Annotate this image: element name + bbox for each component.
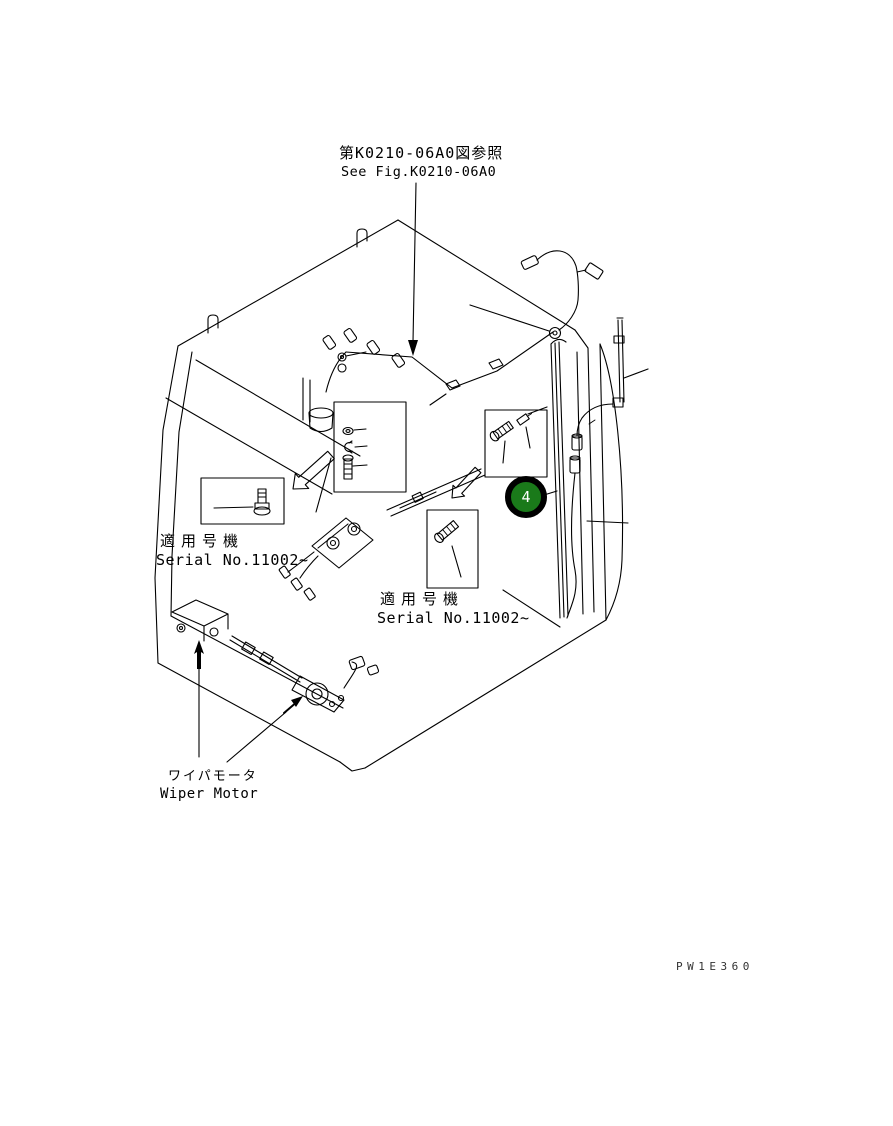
harness-clamp bbox=[489, 359, 503, 369]
wiper-motor-label-en: Wiper Motor bbox=[160, 786, 258, 802]
part-callout-4[interactable]: 4 bbox=[508, 479, 557, 515]
grommet-hole bbox=[352, 527, 357, 532]
solid-arrow-up bbox=[194, 640, 204, 669]
bolt-head bbox=[433, 531, 446, 544]
left-serial-note-en: Serial No.11002~ bbox=[156, 551, 309, 569]
wire-connector bbox=[304, 588, 316, 601]
leader-line bbox=[587, 521, 628, 523]
bolt-head bbox=[254, 507, 270, 515]
bolt-shaft bbox=[493, 421, 513, 438]
floor-edge-left bbox=[158, 663, 340, 762]
harness-connector bbox=[322, 335, 336, 350]
pillar-wire bbox=[567, 473, 576, 618]
cab-outline bbox=[155, 220, 623, 771]
snap-ring bbox=[345, 441, 352, 453]
pivot bbox=[177, 624, 185, 632]
motor-connector bbox=[367, 665, 379, 676]
tank-top bbox=[309, 408, 333, 418]
wire-connector bbox=[291, 578, 303, 591]
pivot-hole bbox=[180, 627, 183, 630]
harness-connector bbox=[366, 340, 380, 355]
callout-box-middle bbox=[427, 510, 478, 588]
callout-box bbox=[201, 478, 284, 524]
leader-line bbox=[470, 305, 549, 331]
roof-corner-right bbox=[575, 330, 588, 348]
parts-diagram-canvas: 4 第K0210-06A0図参照 See Fig.K0210-06A0 適用号機… bbox=[0, 0, 893, 1126]
screw-body bbox=[517, 414, 529, 425]
cable-connector bbox=[585, 262, 604, 279]
interior-diagonal-3 bbox=[387, 469, 481, 510]
right-pillar-line bbox=[577, 352, 583, 614]
right-serial-note-jp: 適用号機 bbox=[380, 590, 464, 608]
wiper-motor-assembly bbox=[172, 600, 379, 762]
labels: 第K0210-06A0図参照 See Fig.K0210-06A0 適用号機 S… bbox=[156, 144, 754, 973]
link-rod bbox=[400, 492, 436, 508]
bolt-threads bbox=[344, 464, 352, 474]
cable-wire bbox=[537, 251, 578, 330]
callout-box bbox=[485, 410, 547, 477]
leader-line bbox=[624, 369, 648, 378]
leader-line bbox=[214, 507, 253, 508]
left-serial-note-jp: 適用号機 bbox=[160, 532, 244, 550]
hardware-column-box bbox=[334, 402, 406, 492]
reference-note-jp: 第K0210-06A0図参照 bbox=[339, 144, 503, 162]
channel-rail-2 bbox=[555, 343, 564, 617]
pivot bbox=[210, 628, 218, 636]
bracket-plate bbox=[312, 518, 373, 568]
bolt-threads bbox=[258, 493, 266, 497]
grommet-hole bbox=[331, 541, 336, 546]
floor-inner-edge bbox=[171, 616, 343, 708]
arrow-line bbox=[413, 183, 416, 342]
callout-box-left bbox=[201, 478, 284, 524]
right-pillar-outer bbox=[600, 344, 606, 620]
right-cable-and-antenna bbox=[470, 251, 648, 618]
left-pillar-inner bbox=[171, 352, 192, 616]
bolt-angled bbox=[488, 421, 513, 443]
leader-line bbox=[503, 407, 547, 463]
parts-diagram-page: 4 第K0210-06A0図参照 See Fig.K0210-06A0 適用号機… bbox=[0, 0, 893, 1126]
rod-connector bbox=[412, 492, 423, 502]
leader-line bbox=[316, 458, 331, 512]
washer bbox=[343, 428, 353, 435]
floor-edge-right bbox=[365, 620, 606, 768]
washer-hole bbox=[346, 430, 350, 433]
channel-rail-3 bbox=[559, 342, 568, 616]
interior-diagonal-2 bbox=[166, 398, 332, 494]
harness-connector bbox=[343, 328, 357, 343]
right-pillar-inner bbox=[588, 348, 594, 612]
reference-arrow bbox=[408, 183, 418, 356]
reference-note-en: See Fig.K0210-06A0 bbox=[341, 164, 496, 180]
antenna-rod bbox=[617, 318, 624, 402]
relay-bracket-assembly bbox=[279, 458, 436, 601]
bolt-shaft bbox=[258, 489, 266, 503]
leader-line bbox=[353, 429, 367, 466]
interior-diagonal-1 bbox=[196, 360, 360, 456]
grommet-cylinder bbox=[327, 537, 339, 549]
floor-notch bbox=[340, 762, 365, 771]
harness-main-run bbox=[346, 332, 553, 388]
motor-connector bbox=[349, 656, 366, 670]
linkage-rod bbox=[230, 636, 302, 682]
callout-box-right bbox=[485, 407, 547, 477]
mount-bracket bbox=[172, 600, 228, 626]
bolt-angled bbox=[433, 520, 459, 544]
washer-small bbox=[338, 364, 346, 372]
leader-line bbox=[452, 546, 461, 577]
harness-stub bbox=[430, 394, 446, 405]
label-leader bbox=[227, 712, 286, 762]
callout-number: 4 bbox=[521, 488, 530, 506]
bracket-side bbox=[204, 614, 228, 641]
roof-edge-right bbox=[398, 220, 575, 330]
bolt-shaft bbox=[437, 521, 458, 541]
channel-rail-1 bbox=[551, 344, 560, 618]
plate-line bbox=[318, 524, 348, 548]
grommet-hole bbox=[553, 331, 557, 335]
wiper-motor-label-jp: ワイパモータ bbox=[168, 769, 258, 784]
doc-code: PW1E360 bbox=[676, 960, 754, 973]
cable-connector bbox=[521, 255, 539, 270]
window-channel bbox=[551, 339, 568, 618]
bolt-threads bbox=[443, 523, 456, 536]
arrow-head bbox=[408, 340, 418, 356]
roof-edge-left bbox=[178, 220, 398, 346]
roof-harness bbox=[322, 328, 553, 405]
right-serial-note-en: Serial No.11002~ bbox=[377, 609, 530, 627]
